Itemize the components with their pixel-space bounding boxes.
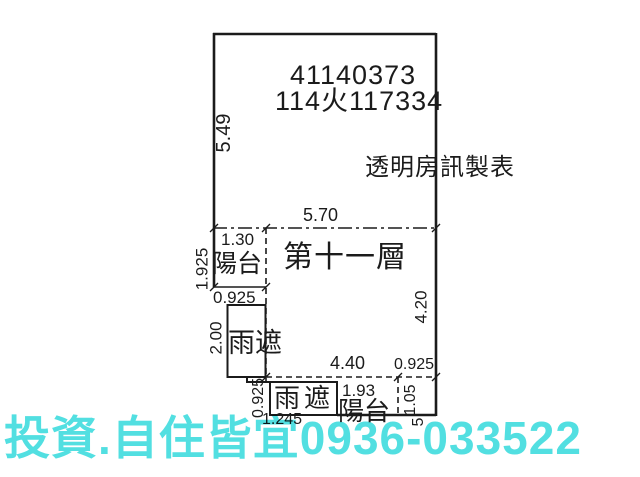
watermark-text: 投資.自住皆宜0936-033522 bbox=[4, 414, 582, 462]
case-number: 41140373 bbox=[290, 62, 416, 89]
dim-lower-right: 0.925 bbox=[394, 357, 434, 373]
maker-label: 透明房訊製表 bbox=[365, 156, 515, 180]
dim-top-balcony-bottom: 0.925 bbox=[213, 289, 256, 306]
floor-plan-page: 41140373 114火117334 透明房訊製表 第十一層 陽台 雨遮 雨遮… bbox=[0, 0, 640, 477]
floor-label: 第十一層 bbox=[283, 243, 407, 273]
dim-left-height: 5.49 bbox=[214, 114, 234, 153]
canopy-lower-label: 雨遮 bbox=[274, 385, 334, 411]
dim-bottom-balcony-width: 1.93 bbox=[342, 382, 375, 399]
dim-lower-span: 4.40 bbox=[330, 354, 365, 372]
dim-canopy-upper-height: 2.00 bbox=[208, 321, 225, 354]
dim-bottom-balcony-height: 1.05 bbox=[403, 384, 419, 415]
dim-top-balcony-width: 1.30 bbox=[221, 231, 254, 248]
dim-main-right-height: 4.20 bbox=[413, 290, 430, 323]
canopy-upper-label: 雨遮 bbox=[228, 330, 282, 357]
dim-top-width: 5.70 bbox=[303, 206, 338, 224]
reference-number: 114火117334 bbox=[275, 88, 443, 115]
top-balcony-label: 陽台 bbox=[212, 252, 262, 277]
dim-top-balcony-height: 1.925 bbox=[194, 248, 211, 291]
